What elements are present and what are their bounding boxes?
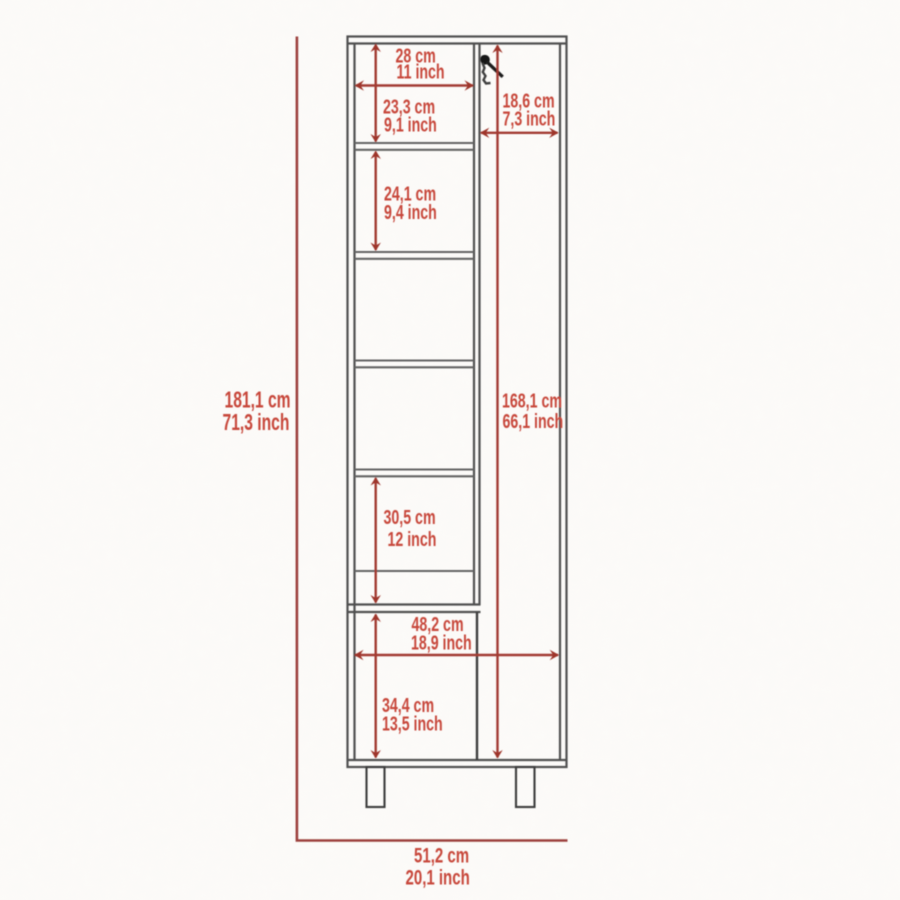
svg-text:71,3 inch: 71,3 inch [223,410,290,436]
svg-text:12 inch: 12 inch [388,528,437,551]
svg-text:18,9 inch: 18,9 inch [411,631,472,654]
svg-text:7,3 inch: 7,3 inch [503,107,556,130]
svg-text:9,4 inch: 9,4 inch [384,201,437,224]
svg-text:51,2 cm: 51,2 cm [414,843,469,867]
svg-text:30,5 cm: 30,5 cm [384,506,436,529]
svg-text:11 inch: 11 inch [397,60,445,83]
svg-text:20,1 inch: 20,1 inch [406,865,470,889]
svg-text:9,1 inch: 9,1 inch [384,113,437,136]
svg-text:66,1 inch: 66,1 inch [503,410,564,433]
svg-text:13,5 inch: 13,5 inch [382,712,443,735]
